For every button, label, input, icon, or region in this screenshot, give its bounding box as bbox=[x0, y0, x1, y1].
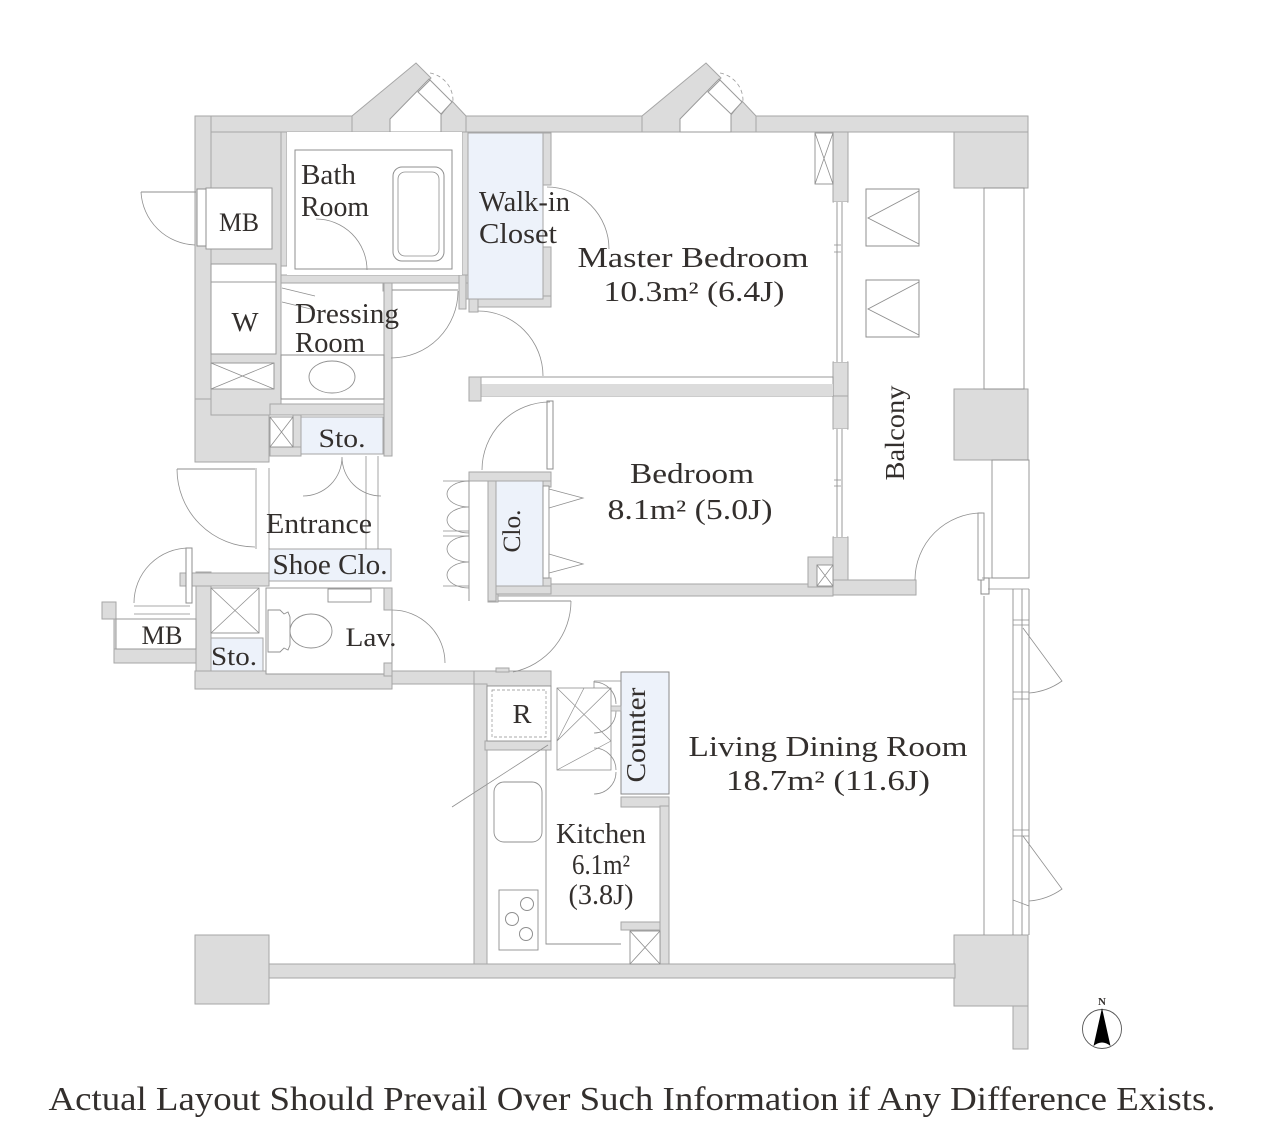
svg-text:18.7m² (11.6J): 18.7m² (11.6J) bbox=[726, 766, 930, 797]
svg-text:MB: MB bbox=[142, 621, 183, 650]
svg-text:Closet: Closet bbox=[479, 219, 557, 250]
svg-text:Sto.: Sto. bbox=[319, 424, 366, 453]
svg-text:6.1m²: 6.1m² bbox=[572, 850, 630, 881]
svg-text:W: W bbox=[232, 307, 260, 337]
svg-text:Living Dining Room: Living Dining Room bbox=[689, 732, 968, 763]
svg-text:Entrance: Entrance bbox=[266, 509, 372, 540]
svg-text:Clo.: Clo. bbox=[499, 510, 526, 553]
svg-text:(3.8J): (3.8J) bbox=[569, 880, 634, 911]
svg-text:Room: Room bbox=[301, 192, 369, 223]
svg-text:Bath: Bath bbox=[301, 160, 356, 191]
svg-text:Walk-in: Walk-in bbox=[479, 187, 570, 218]
svg-text:Lav.: Lav. bbox=[346, 623, 397, 652]
svg-text:Sto.: Sto. bbox=[211, 642, 257, 671]
svg-text:Actual Layout Should Prevail O: Actual Layout Should Prevail Over Such I… bbox=[49, 1081, 1216, 1118]
svg-text:Room: Room bbox=[295, 328, 365, 359]
svg-text:Balcony: Balcony bbox=[880, 385, 910, 481]
svg-text:Dressing: Dressing bbox=[295, 299, 399, 330]
svg-text:Shoe Clo.: Shoe Clo. bbox=[273, 550, 388, 581]
svg-text:Counter: Counter bbox=[621, 688, 651, 783]
svg-text:8.1m² (5.0J): 8.1m² (5.0J) bbox=[608, 495, 773, 526]
svg-text:N: N bbox=[1098, 996, 1106, 1008]
svg-text:Master Bedroom: Master Bedroom bbox=[578, 243, 809, 274]
svg-text:MB: MB bbox=[219, 208, 259, 237]
svg-text:10.3m² (6.4J): 10.3m² (6.4J) bbox=[604, 277, 785, 308]
svg-text:Kitchen: Kitchen bbox=[556, 819, 646, 850]
svg-text:Bedroom: Bedroom bbox=[630, 459, 754, 490]
svg-text:R: R bbox=[513, 699, 532, 729]
